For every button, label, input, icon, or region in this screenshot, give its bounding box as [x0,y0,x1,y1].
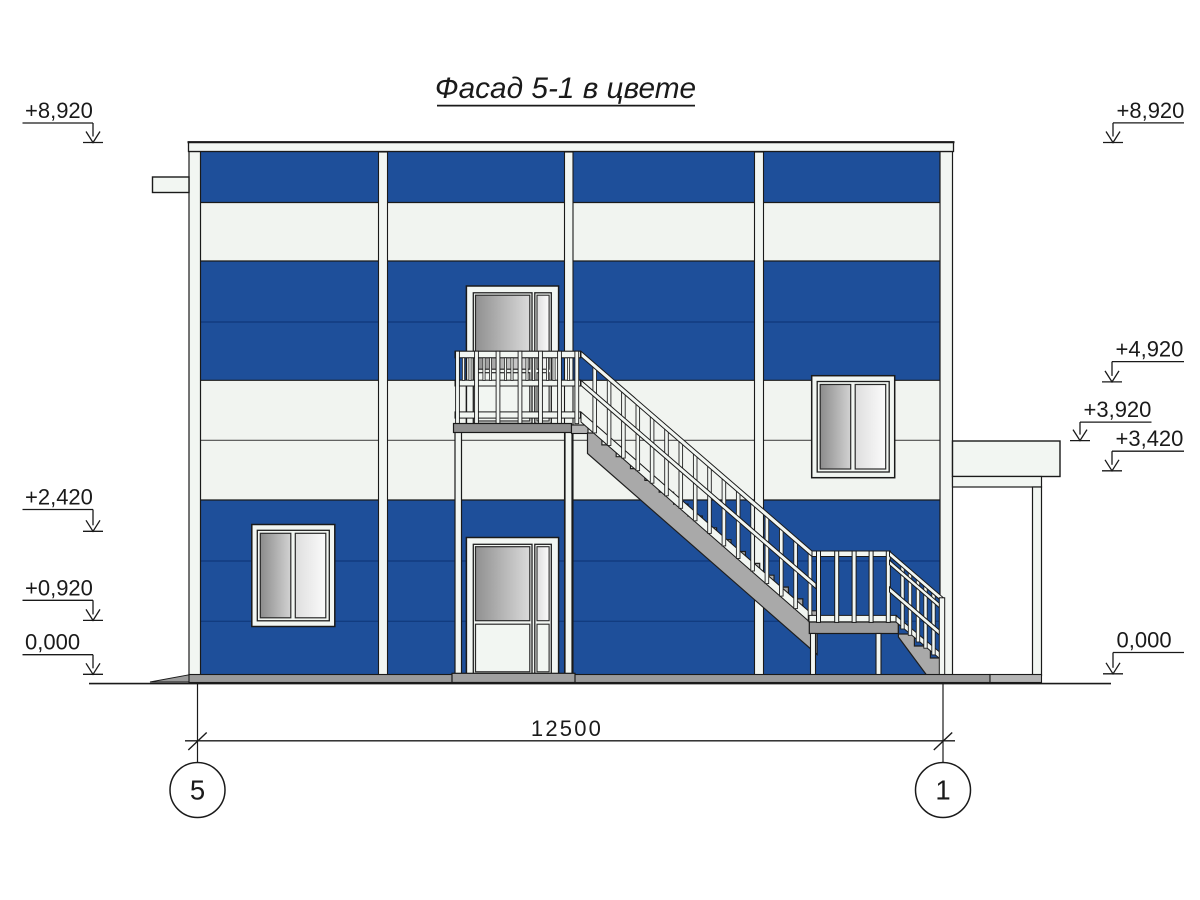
svg-text:12500: 12500 [531,716,603,741]
svg-text:1: 1 [935,775,950,806]
svg-text:+4,920: +4,920 [1116,337,1184,362]
svg-text:+3,420: +3,420 [1116,426,1184,451]
svg-text:5: 5 [190,775,205,806]
svg-text:0,000: 0,000 [25,630,80,655]
svg-text:+0,920: +0,920 [25,575,93,600]
svg-text:Фасад 5-1 в цвете: Фасад 5-1 в цвете [435,72,696,105]
svg-text:+2,420: +2,420 [25,485,93,510]
svg-text:+8,920: +8,920 [1117,98,1185,123]
svg-text:+8,920: +8,920 [25,98,93,123]
svg-text:+3,920: +3,920 [1084,397,1152,422]
svg-text:0,000: 0,000 [1117,628,1172,653]
